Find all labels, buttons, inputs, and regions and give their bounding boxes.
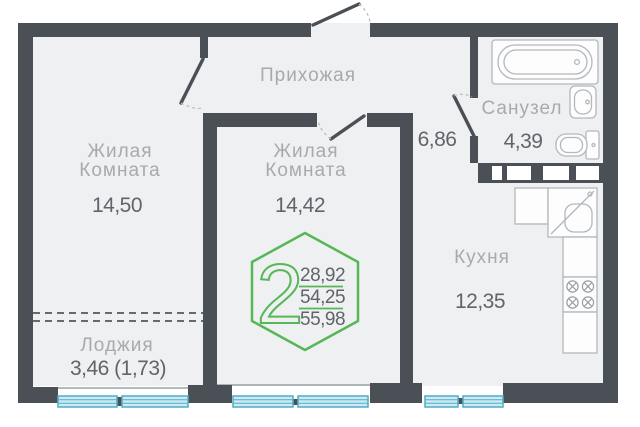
left-wall — [18, 23, 33, 403]
kitchen-counter-bottom — [563, 312, 597, 353]
badge-rooms-count: 2 — [257, 247, 304, 341]
entrance-opening-floor — [311, 23, 370, 37]
window-2 — [122, 396, 188, 407]
bottom-wall-pier-1 — [188, 385, 232, 403]
badge-total-area: 55,98 — [300, 309, 345, 330]
bathtub-icon — [492, 40, 598, 84]
floor-plan-page: Прихожая 6,86 Жилая Комната 14,50 Жилая … — [0, 0, 640, 427]
bathroom-label: Санузел — [481, 98, 562, 119]
kitchen-sink-icon — [548, 188, 597, 237]
toilet-icon — [556, 131, 599, 159]
bottom-wall-corner-left — [18, 387, 58, 403]
window-5 — [425, 396, 458, 407]
top-wall-right — [370, 23, 618, 37]
bottom-wall-kitchen — [503, 383, 618, 403]
window-3 — [233, 396, 293, 407]
badge-area-without-loggia: 54,25 — [300, 287, 345, 308]
window-1 — [58, 396, 117, 407]
top-wall-left — [18, 23, 311, 37]
bathroom-sink-icon — [570, 86, 596, 118]
badge-living-area: 28,92 — [300, 265, 345, 286]
kitchen-label: Кухня — [454, 247, 510, 268]
kitchen-counter-top — [515, 188, 548, 224]
living1-label-line2: Комната — [79, 160, 160, 181]
loggia-label: Лоджия — [80, 335, 153, 356]
living2-label-line1: Жилая — [273, 141, 338, 162]
bathroom-wall-lower — [470, 136, 478, 163]
stove-icon — [563, 277, 597, 312]
living1-living2-wall — [203, 113, 217, 385]
bottom-wall-pier-2 — [370, 383, 422, 403]
living2-kitchen-wall — [400, 113, 413, 385]
living2-label-line2: Комната — [265, 160, 346, 181]
window-4 — [298, 396, 368, 407]
living2-area: 14,42 — [275, 194, 325, 217]
kitchen-area: 12,35 — [455, 290, 505, 313]
entrance-door — [313, 4, 370, 25]
living1-area: 14,50 — [92, 194, 142, 217]
bathroom-wall-upper — [470, 37, 478, 98]
kitchen-counter-mid — [563, 237, 597, 277]
hallway-label: Прихожая — [260, 65, 356, 86]
loggia-area: 3,46 (1,73) — [70, 357, 166, 380]
living1-door-stub — [200, 37, 208, 58]
right-wall — [603, 23, 618, 403]
hallway-area: 6,86 — [418, 128, 457, 151]
bathroom-area: 4,39 — [504, 130, 543, 153]
living1-label-line1: Жилая — [87, 141, 152, 162]
vent-shaft-wall — [478, 163, 603, 183]
windows — [58, 396, 503, 407]
living2-top-wall-left — [203, 113, 317, 127]
floor-plan: Прихожая 6,86 Жилая Комната 14,50 Жилая … — [0, 0, 640, 427]
window-6 — [463, 396, 503, 407]
